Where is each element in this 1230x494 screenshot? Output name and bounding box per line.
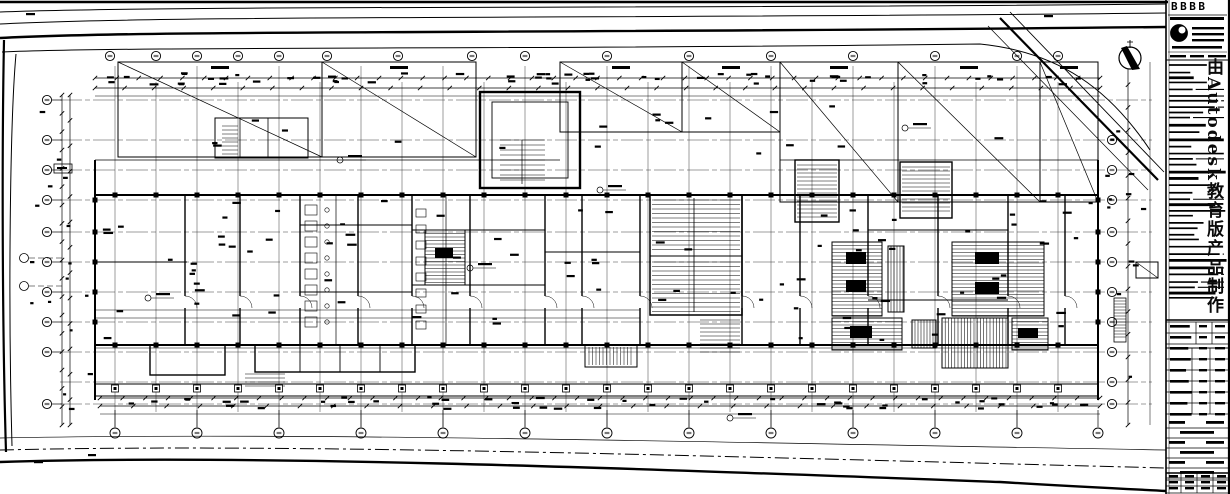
title-block-company: BBBB (1171, 0, 1208, 13)
drawing-sheet: BBBB 由Autodesk教育版产品制作 (0, 0, 1230, 494)
canopy-void-band (118, 62, 1098, 202)
seating-desk-blocks (425, 230, 1126, 368)
autodesk-educational-watermark: 由Autodesk教育版产品制作 (1201, 58, 1226, 388)
site-boundary-roads (0, 2, 1168, 491)
floor-plan-canvas (0, 0, 1230, 494)
building-walls (95, 160, 1098, 400)
north-arrow (1119, 40, 1141, 70)
